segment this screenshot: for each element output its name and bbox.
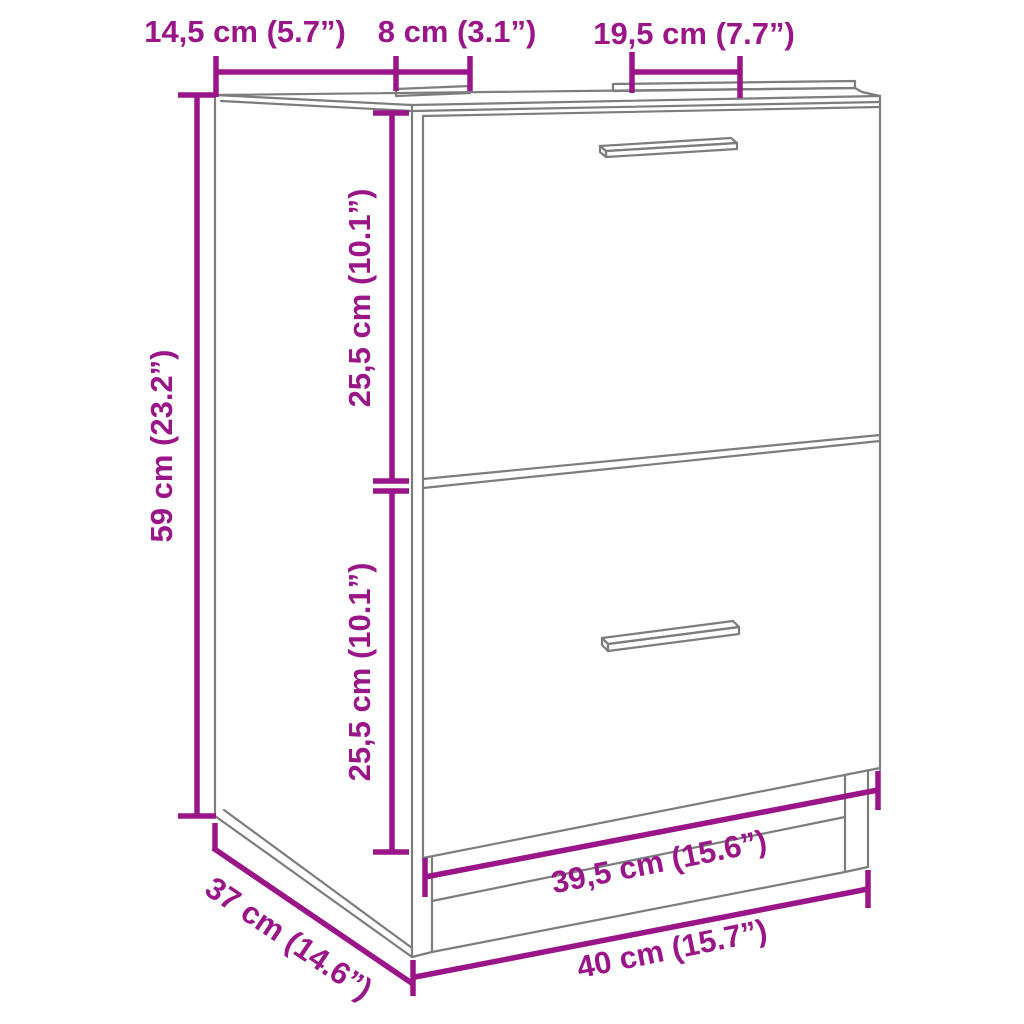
label-top-left-width: 14,5 cm (5.7”) [144, 14, 346, 49]
label-depth: 37 cm (14.6”) [199, 870, 379, 1007]
upper-drawer-handle [600, 138, 737, 157]
dimension-diagram-canvas: 14,5 cm (5.7”) 8 cm (3.1”) 19,5 cm (7.7”… [0, 0, 1024, 1024]
dimension-lower-drawer-height [373, 491, 409, 852]
dimension-top-left-width [216, 56, 396, 97]
label-upper-drawer-height: 25,5 cm (10.1”) [342, 189, 377, 408]
dimension-upper-drawer-height [373, 113, 409, 481]
label-top-right-width: 19,5 cm (7.7”) [593, 16, 795, 51]
lower-drawer-handle [602, 621, 739, 651]
cabinet-front [423, 96, 880, 858]
label-lower-drawer-height: 25,5 cm (10.1”) [342, 563, 377, 782]
label-overall-height: 59 cm (23.2”) [144, 350, 179, 543]
label-top-middle-width: 8 cm (3.1”) [378, 14, 537, 49]
dimension-overall-height [178, 95, 216, 816]
cabinet-left-side [215, 95, 412, 957]
diagram-stage: 14,5 cm (5.7”) 8 cm (3.1”) 19,5 cm (7.7”… [0, 0, 1024, 1024]
label-overall-width: 40 cm (15.7”) [574, 912, 770, 985]
cabinet-top [215, 81, 880, 111]
cabinet-line-drawing [215, 81, 880, 957]
